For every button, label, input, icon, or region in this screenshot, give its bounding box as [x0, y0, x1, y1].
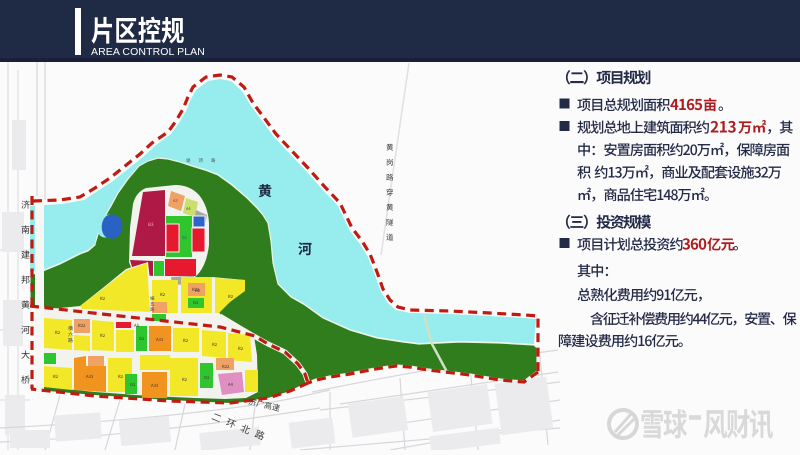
- svg-text:AREA CONTROL PLAN: AREA CONTROL PLAN: [91, 46, 205, 58]
